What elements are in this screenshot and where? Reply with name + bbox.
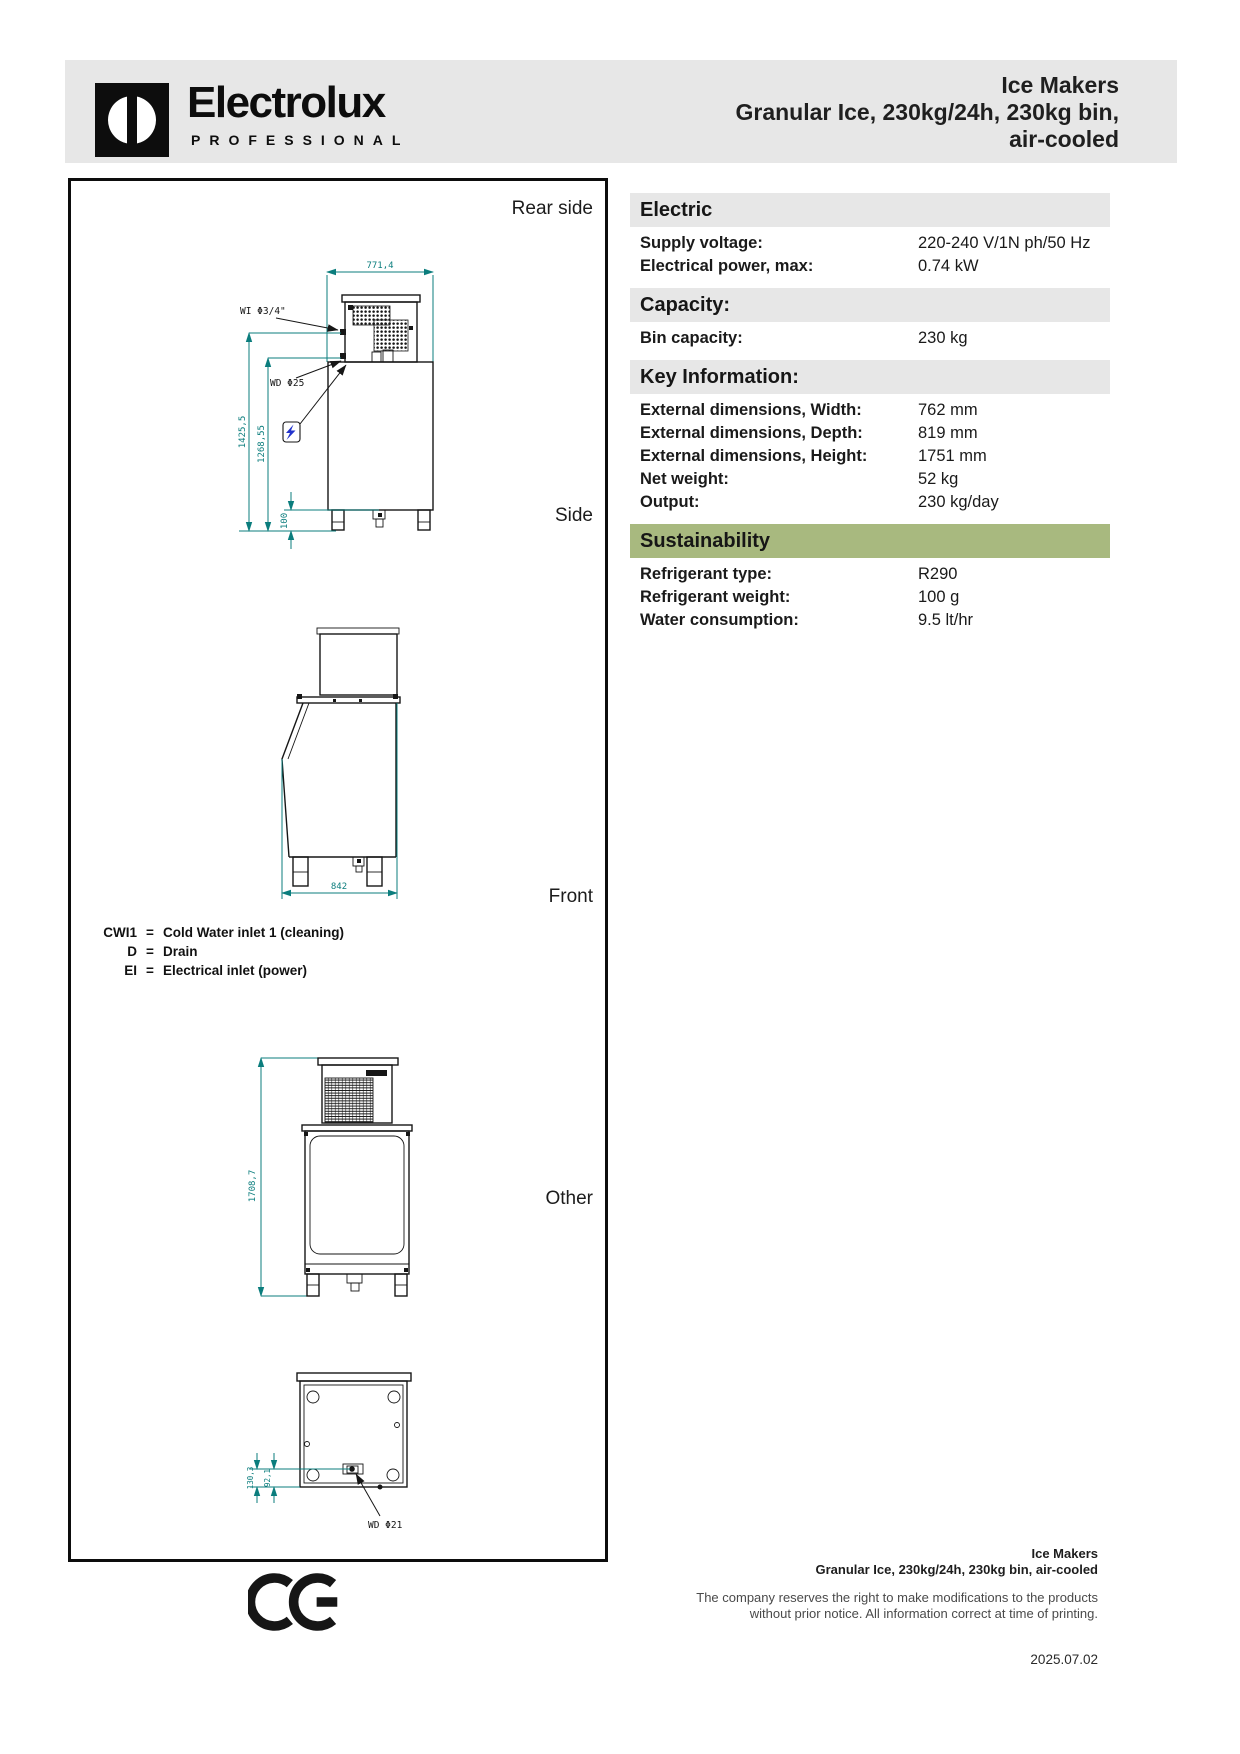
- spec-label: Output:: [640, 491, 918, 514]
- product-description-line2: air-cooled: [735, 126, 1119, 153]
- label-water-drain: WD Φ25: [270, 378, 304, 389]
- legend-description: Electrical inlet (power): [163, 963, 344, 978]
- dim-rear-width: 771,4: [366, 261, 393, 271]
- ice-bin-outline: [328, 362, 433, 510]
- view-label-front: Front: [549, 886, 593, 908]
- spec-value: 762 mm: [918, 399, 1110, 422]
- electrolux-logo-icon: [95, 83, 169, 157]
- legend-description: Drain: [163, 944, 344, 959]
- spec-row: Bin capacity:230 kg: [640, 327, 1110, 350]
- page-title: Ice Makers Granular Ice, 230kg/24h, 230k…: [735, 72, 1119, 153]
- spec-rows: Refrigerant type:R290Refrigerant weight:…: [630, 558, 1110, 639]
- spec-row: External dimensions, Depth:819 mm: [640, 422, 1110, 445]
- spec-row: Net weight:52 kg: [640, 468, 1110, 491]
- spec-value: R290: [918, 563, 1110, 586]
- spec-value: 100 g: [918, 586, 1110, 609]
- spec-value: 9.5 lt/hr: [918, 609, 1110, 632]
- spec-row: External dimensions, Height:1751 mm: [640, 445, 1110, 468]
- spec-label: Bin capacity:: [640, 327, 918, 350]
- label-water-inlet: WI Φ3/4": [240, 306, 286, 317]
- spec-value: 52 kg: [918, 468, 1110, 491]
- product-description-line1: Granular Ice, 230kg/24h, 230kg bin,: [735, 99, 1119, 126]
- spec-value: 0.74 kW: [918, 255, 1110, 278]
- spec-row: Electrical power, max:0.74 kW: [640, 255, 1110, 278]
- drawing-legend: CWI1=Cold Water inlet 1 (cleaning)D=Drai…: [85, 925, 344, 978]
- bottom-view-drawing: 130,3 92,1 WD Φ21: [228, 1368, 488, 1568]
- spec-label: Water consumption:: [640, 609, 918, 632]
- spec-label: Net weight:: [640, 468, 918, 491]
- footer-disclaimer-line1: The company reserves the right to make m…: [696, 1590, 1098, 1606]
- footer-date: 2025.07.02: [1030, 1652, 1098, 1667]
- header: Electrolux PROFESSIONAL Ice Makers Granu…: [65, 60, 1177, 163]
- spec-rows: Bin capacity:230 kg: [630, 322, 1110, 357]
- legend-separator: =: [137, 925, 163, 940]
- legend-code: EI: [85, 963, 137, 978]
- dim-rear-height-2: 1268,55: [257, 425, 267, 463]
- front-view-drawing: 1708,7: [218, 1038, 488, 1308]
- ce-mark-icon: [248, 1566, 344, 1638]
- footer-disclaimer-line2: without prior notice. All information co…: [696, 1606, 1098, 1622]
- spec-table: ElectricSupply voltage:220-240 V/1N ph/5…: [630, 190, 1110, 639]
- rating-plate: [366, 1070, 387, 1076]
- technical-drawing-panel: Rear side Side Front Other 771,4: [68, 178, 608, 1562]
- view-label-side: Side: [555, 505, 593, 527]
- legend-code: D: [85, 944, 137, 959]
- spec-section-header: Key Information:: [630, 360, 1110, 394]
- electrical-inlet-icon: [283, 422, 300, 442]
- spec-label: External dimensions, Width:: [640, 399, 918, 422]
- dim-rear-clearance: 100: [280, 513, 290, 529]
- spec-row: Supply voltage:220-240 V/1N ph/50 Hz: [640, 232, 1110, 255]
- dim-other-offset-2: 92,1: [263, 1469, 272, 1487]
- spec-row: Refrigerant weight:100 g: [640, 586, 1110, 609]
- dim-side-depth: 842: [331, 882, 347, 892]
- dim-front-height: 1708,7: [248, 1170, 258, 1203]
- footer-product-line2: Granular Ice, 230kg/24h, 230kg bin, air-…: [696, 1562, 1098, 1578]
- spec-value: 230 kg: [918, 327, 1110, 350]
- condenser-grille: [325, 1078, 373, 1122]
- spec-label: Refrigerant weight:: [640, 586, 918, 609]
- spec-label: External dimensions, Depth:: [640, 422, 918, 445]
- spec-value: 220-240 V/1N ph/50 Hz: [918, 232, 1110, 255]
- view-label-rear: Rear side: [512, 198, 593, 220]
- side-view-drawing: 842: [163, 548, 473, 908]
- spec-label: External dimensions, Height:: [640, 445, 918, 468]
- legend-code: CWI1: [85, 925, 137, 940]
- spec-section-header: Sustainability: [630, 524, 1110, 558]
- footer: Ice Makers Granular Ice, 230kg/24h, 230k…: [696, 1546, 1098, 1622]
- spec-row: Water consumption:9.5 lt/hr: [640, 609, 1110, 632]
- spec-value: 1751 mm: [918, 445, 1110, 468]
- spec-label: Supply voltage:: [640, 232, 918, 255]
- ice-bin-outline: [305, 1131, 409, 1274]
- spec-section-header: Capacity:: [630, 288, 1110, 322]
- water-inlet-connector: [340, 329, 346, 335]
- brand-subtitle: PROFESSIONAL: [191, 132, 409, 148]
- legend-separator: =: [137, 944, 163, 959]
- product-family: Ice Makers: [735, 72, 1119, 99]
- dim-other-offset-1: 130,3: [246, 1467, 255, 1490]
- spec-value: 819 mm: [918, 422, 1110, 445]
- foot-mark: [307, 1391, 319, 1403]
- rear-view-drawing: 771,4: [176, 226, 486, 551]
- spec-row: Output:230 kg/day: [640, 491, 1110, 514]
- datasheet-page: Electrolux PROFESSIONAL Ice Makers Granu…: [0, 0, 1240, 1754]
- spec-label: Refrigerant type:: [640, 563, 918, 586]
- spec-label: Electrical power, max:: [640, 255, 918, 278]
- legend-separator: =: [137, 963, 163, 978]
- spec-rows: Supply voltage:220-240 V/1N ph/50 HzElec…: [630, 227, 1110, 285]
- view-label-other: Other: [545, 1188, 593, 1210]
- spec-row: External dimensions, Width:762 mm: [640, 399, 1110, 422]
- dim-rear-height-1: 1425,5: [238, 416, 248, 449]
- spec-row: Refrigerant type:R290: [640, 563, 1110, 586]
- brand-name: Electrolux: [187, 78, 385, 128]
- legend-description: Cold Water inlet 1 (cleaning): [163, 925, 344, 940]
- label-bottom-water-drain: WD Φ21: [368, 1520, 403, 1531]
- spec-value: 230 kg/day: [918, 491, 1110, 514]
- spec-rows: External dimensions, Width:762 mmExterna…: [630, 394, 1110, 521]
- spec-section-header: Electric: [630, 193, 1110, 227]
- footer-product-line1: Ice Makers: [696, 1546, 1098, 1562]
